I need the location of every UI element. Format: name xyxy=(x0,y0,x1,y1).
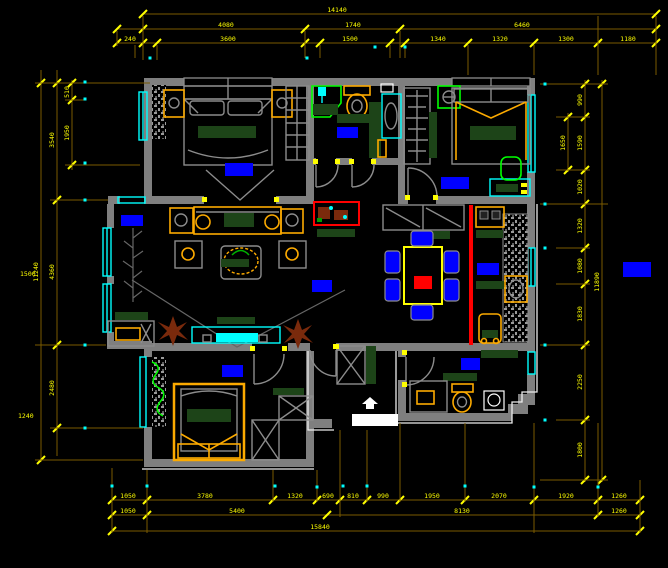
room-label-bedroom-2 xyxy=(441,177,469,189)
desk xyxy=(490,179,530,196)
room-label-bathroom-2 xyxy=(461,358,480,370)
dim-text: 1300 xyxy=(558,35,574,43)
extension-dot xyxy=(597,486,600,489)
kitchen-furniture xyxy=(476,207,528,344)
extension-dot xyxy=(111,485,114,488)
bay-plant xyxy=(123,228,143,302)
dim-text: 6460 xyxy=(514,21,530,29)
hinge-dot xyxy=(274,197,279,202)
floor-plan-drawing: 1414040801740646024036001500134013201300… xyxy=(0,0,668,568)
dim-text: 14140 xyxy=(327,6,347,14)
coffee-table xyxy=(221,246,261,279)
nightstand-right xyxy=(272,90,292,117)
dim-text: 3780 xyxy=(197,492,213,500)
washing-machine xyxy=(484,391,504,410)
extension-dot xyxy=(316,486,319,489)
extension-dot xyxy=(544,203,547,206)
dim-text: 510 xyxy=(63,86,71,98)
counter-top-2 xyxy=(476,281,504,289)
dim-text: 4360 xyxy=(48,264,56,280)
wardrobe xyxy=(404,88,430,164)
dim-text: 15840 xyxy=(310,523,330,531)
extension-dot xyxy=(306,57,309,60)
extension-dot xyxy=(146,485,149,488)
extension-dot xyxy=(366,485,369,488)
counter-top-1 xyxy=(476,230,503,238)
toilet2 xyxy=(452,384,473,412)
dim-text: 1740 xyxy=(345,21,361,29)
entry-marker-icon xyxy=(362,397,378,409)
kitchen-cart xyxy=(479,314,501,344)
dim-text: 1080 xyxy=(576,258,584,274)
dim-text: 1260 xyxy=(611,507,627,515)
dim-text: 1320 xyxy=(287,492,303,500)
dim-text: 1500 xyxy=(342,35,358,43)
shower-head xyxy=(318,87,326,96)
plant-brown-left xyxy=(158,316,188,346)
dim-text: 1180 xyxy=(620,35,636,43)
extension-dot xyxy=(544,83,547,86)
extension-dot xyxy=(533,486,536,489)
room-label-living-room xyxy=(312,280,332,292)
desk-chair xyxy=(501,157,521,180)
hinge-dot xyxy=(202,197,207,202)
table-centerpiece xyxy=(414,276,432,289)
room-label-kitchen xyxy=(477,263,499,275)
bed-bedroom2 xyxy=(452,88,530,164)
dim-text: 1320 xyxy=(492,35,508,43)
room-label-bay-window xyxy=(121,215,143,226)
dim-text: 5400 xyxy=(229,507,245,515)
dim-text: 1650 xyxy=(559,135,567,151)
extension-dot xyxy=(274,485,277,488)
room-label-bathroom xyxy=(337,127,358,138)
master-bedroom-furniture xyxy=(152,85,309,202)
dim-text: 1260 xyxy=(611,492,627,500)
dim-text: 240 xyxy=(124,35,136,43)
extension-dot xyxy=(84,427,87,430)
toilet xyxy=(344,86,370,118)
wardrobe-bedroom3 xyxy=(252,388,313,460)
vanity-side xyxy=(369,102,381,158)
dining-chairs xyxy=(385,231,459,320)
extension-dot xyxy=(342,485,345,488)
dim-text: 690 xyxy=(322,492,334,500)
entry-cabinet xyxy=(337,346,376,384)
dim-text: 990 xyxy=(576,94,584,106)
tv-unit xyxy=(192,317,280,343)
stove xyxy=(476,207,504,227)
entry-area xyxy=(310,344,398,426)
extension-dot xyxy=(544,344,547,347)
extension-dot xyxy=(84,162,87,165)
nightstand-left xyxy=(164,90,184,117)
dim-text: 8130 xyxy=(454,507,470,515)
dim-text: 3540 xyxy=(48,132,56,148)
window-left-bedroom3 xyxy=(140,357,146,427)
dim-text: 1950 xyxy=(424,492,440,500)
hall-shelf xyxy=(317,229,355,237)
dim-text: 1050 xyxy=(120,507,136,515)
extension-dot xyxy=(544,419,547,422)
dim-text: 1320 xyxy=(576,218,584,234)
extension-dot xyxy=(149,57,152,60)
entry-door xyxy=(310,344,339,376)
shelf-top xyxy=(481,350,518,358)
window-right-kitchen xyxy=(528,248,535,286)
dim-text: 2480 xyxy=(48,380,56,396)
margin-dim-text: 1500 xyxy=(20,270,36,278)
dim-text: 1920 xyxy=(558,492,574,500)
dim-text: 990 xyxy=(377,492,389,500)
counter xyxy=(337,114,372,123)
bedroom3-furniture xyxy=(152,346,313,460)
dim-text: 1340 xyxy=(430,35,446,43)
room-label-side-note xyxy=(623,262,651,277)
dim-text: 1800 xyxy=(576,442,584,458)
window-top-bedroom2 xyxy=(452,78,530,86)
counter-hatch xyxy=(503,214,528,342)
window-bay-1 xyxy=(103,228,111,276)
dim-text: 1590 xyxy=(576,135,584,151)
extension-dot xyxy=(84,81,87,84)
dining-furniture xyxy=(383,205,464,320)
dim-text: 1020 xyxy=(576,179,584,195)
extension-dot xyxy=(404,46,407,49)
extension-dot xyxy=(84,199,87,202)
cad-canvas[interactable]: 1414040801740646024036001500134013201300… xyxy=(0,0,668,568)
entry-plate xyxy=(352,414,398,426)
closet-shelf xyxy=(429,112,437,158)
dim-text: 3600 xyxy=(220,35,236,43)
dim-text: 810 xyxy=(347,492,359,500)
dim-text: 2250 xyxy=(576,374,584,390)
door-bedroom2 xyxy=(405,168,438,200)
dim-text: 1950 xyxy=(63,125,71,141)
bathroom2-furniture xyxy=(402,350,518,412)
window-bay-2 xyxy=(103,284,111,332)
room-label-master-bedroom xyxy=(225,163,253,176)
room-label-bedroom-3 xyxy=(222,365,243,377)
sofa-set xyxy=(170,207,306,268)
extension-dot xyxy=(84,98,87,101)
extension-dot xyxy=(464,485,467,488)
kitchen-sliding-track xyxy=(469,205,473,345)
living-room-furniture xyxy=(108,202,359,349)
window-right-bedroom2 xyxy=(528,95,535,172)
counter-mid xyxy=(443,373,477,381)
dining-table xyxy=(404,247,442,304)
extension-dot xyxy=(84,344,87,347)
bed-master xyxy=(184,86,272,165)
vanity2 xyxy=(410,381,447,412)
door-bedroom3 xyxy=(250,346,287,384)
bed-bedroom3 xyxy=(174,384,244,460)
extension-dot xyxy=(374,46,377,49)
aquarium xyxy=(314,202,359,225)
shoe-cabinet-bay xyxy=(108,312,154,346)
shower-bench xyxy=(313,104,338,115)
window-right-bathroom2 xyxy=(528,352,535,374)
dim-text: 2070 xyxy=(491,492,507,500)
extension-dot xyxy=(544,247,547,250)
window-bay-step xyxy=(118,197,145,203)
dim-text: 4080 xyxy=(218,21,234,29)
dim-text: 1050 xyxy=(120,492,136,500)
dim-text: 11890 xyxy=(593,272,601,292)
dim-text: 1830 xyxy=(576,306,584,322)
window-top-master xyxy=(184,78,272,86)
margin-dim-text: 1240 xyxy=(18,412,34,420)
dresser xyxy=(286,86,309,160)
exterior-outline xyxy=(142,204,537,469)
